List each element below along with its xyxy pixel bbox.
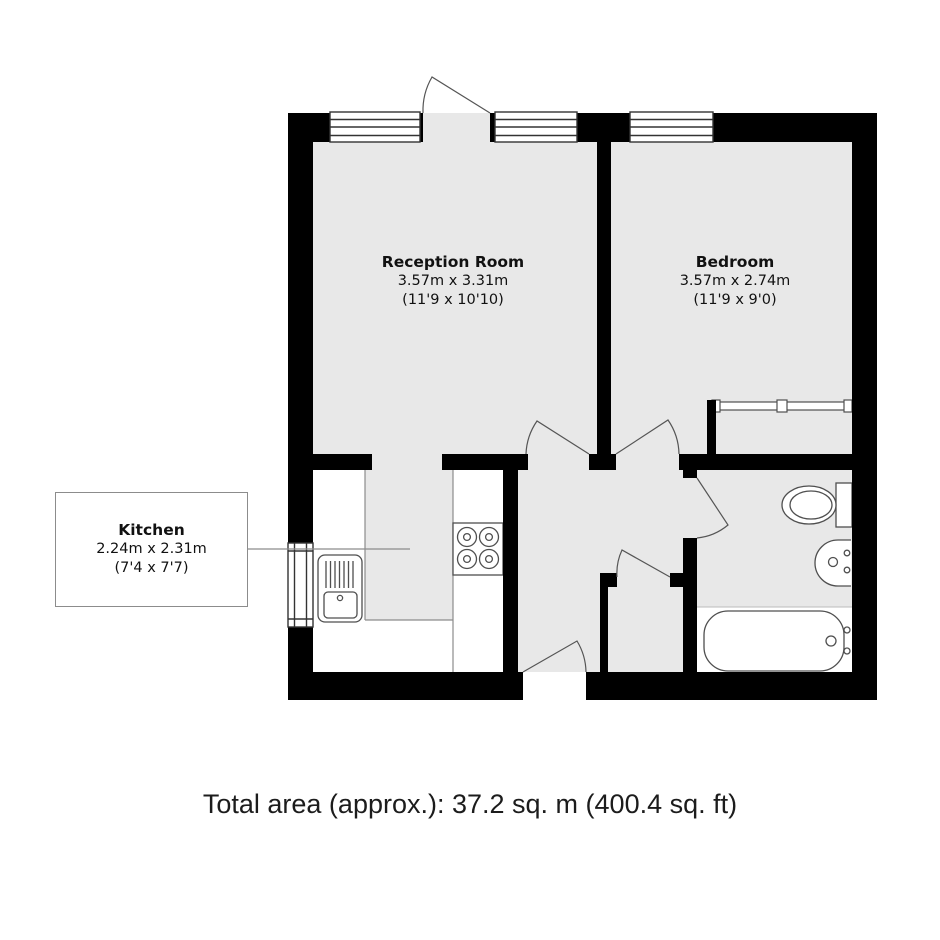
basin-tap bbox=[844, 567, 850, 573]
bathtub bbox=[704, 611, 850, 671]
kitchen-floor bbox=[365, 454, 453, 620]
hallway-floor-upper bbox=[518, 470, 683, 573]
reception-room-name: Reception Room bbox=[333, 253, 573, 272]
kitchen-sink bbox=[318, 555, 362, 622]
reception-room-metric: 3.57m x 3.31m bbox=[333, 272, 573, 291]
kitchen-name: Kitchen bbox=[56, 521, 247, 540]
doorway-gap-bathroom bbox=[683, 478, 697, 538]
window-reception-right bbox=[495, 112, 577, 142]
wall-closet-stub bbox=[707, 400, 716, 454]
bathtub-tap bbox=[844, 627, 850, 633]
kitchen-imperial: (7'4 x 7'7) bbox=[56, 559, 247, 578]
wardrobe-sliding-doors bbox=[712, 400, 852, 412]
window-bedroom bbox=[630, 112, 713, 142]
window-kitchen bbox=[288, 543, 313, 627]
reception-room-imperial: (11'9 x 10'10) bbox=[333, 291, 573, 310]
bathtub-drain bbox=[826, 636, 836, 646]
wall-bathroom-left-upper bbox=[683, 470, 697, 478]
bathroom-floor bbox=[697, 470, 852, 607]
wall-right bbox=[852, 113, 877, 700]
toilet bbox=[782, 483, 852, 527]
sink-drainer-lines bbox=[326, 561, 353, 588]
sink-drain bbox=[337, 595, 342, 600]
doorway-gap-bedroom-hall bbox=[616, 454, 679, 470]
hallway-floor-lower bbox=[518, 573, 600, 672]
door-arc-balcony bbox=[423, 77, 490, 113]
basin-tap bbox=[844, 550, 850, 556]
bedroom-metric: 3.57m x 2.74m bbox=[615, 272, 855, 291]
wall-cupboard-right-stub bbox=[670, 573, 683, 587]
wall-divider-reception-bedroom bbox=[597, 142, 611, 454]
wall-kitchen-right bbox=[503, 465, 518, 675]
basin-drain bbox=[829, 558, 838, 567]
toilet-bowl-inner bbox=[790, 491, 832, 519]
kitchen-label-box: Kitchen 2.24m x 2.31m (7'4 x 7'7) bbox=[55, 492, 248, 607]
doorway-gap-reception-hall bbox=[526, 454, 589, 470]
wall-bathroom-left-lower bbox=[683, 538, 697, 672]
cupboard-floor bbox=[608, 573, 683, 672]
doorway-gap-kitchen bbox=[372, 454, 442, 470]
reception-room-label: Reception Room 3.57m x 3.31m (11'9 x 10'… bbox=[333, 253, 573, 310]
front-door-gap bbox=[523, 672, 586, 700]
doorway-gap-balcony bbox=[423, 113, 490, 142]
wall-cupboard-left-stub bbox=[600, 573, 617, 587]
total-area-text: Total area (approx.): 37.2 sq. m (400.4 … bbox=[0, 789, 940, 820]
bedroom-imperial: (11'9 x 9'0) bbox=[615, 291, 855, 310]
toilet-cistern bbox=[836, 483, 852, 527]
wall-mid-seg1 bbox=[288, 454, 372, 470]
bathtub-tap bbox=[844, 648, 850, 654]
kitchen-metric: 2.24m x 2.31m bbox=[56, 540, 247, 559]
cooker-hob bbox=[453, 523, 503, 575]
bedroom-name: Bedroom bbox=[615, 253, 855, 272]
window-reception-left bbox=[330, 112, 420, 142]
wall-mid-seg4 bbox=[679, 454, 877, 470]
floorplan-page: Reception Room 3.57m x 3.31m (11'9 x 10'… bbox=[0, 0, 940, 940]
wall-mid-seg3 bbox=[589, 454, 616, 470]
bedroom-label: Bedroom 3.57m x 2.74m (11'9 x 9'0) bbox=[615, 253, 855, 310]
wall-cupboard-left bbox=[600, 587, 608, 672]
